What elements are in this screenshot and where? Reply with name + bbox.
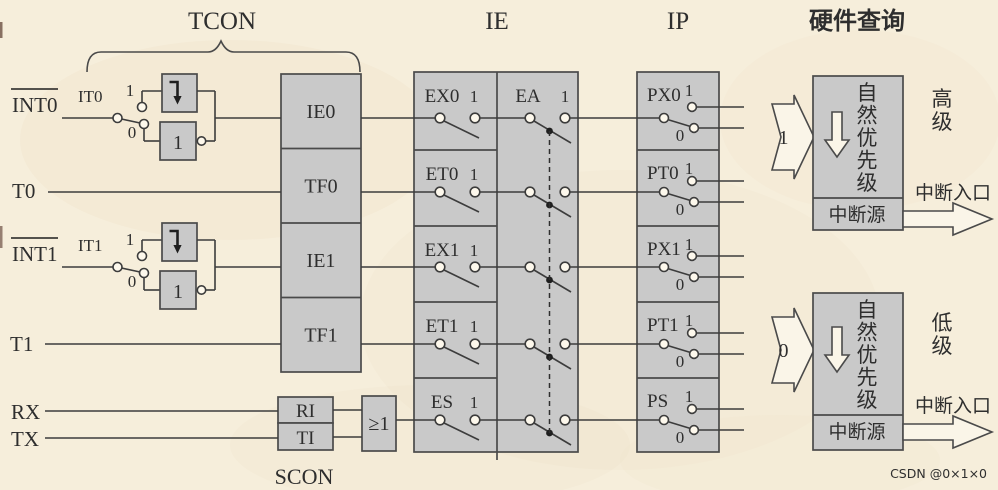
scon-title: SCON	[275, 464, 334, 489]
natural-priority-label: 自然优先级	[857, 298, 878, 412]
switch-contact	[690, 124, 699, 133]
switch-pole	[525, 113, 535, 123]
ip-one-label: 1	[685, 81, 694, 100]
switch-contact	[688, 405, 697, 414]
switch-pole	[435, 187, 445, 197]
interrupt-entry-label: 中断入口	[915, 395, 991, 417]
interrupt-source-label: 中断源	[828, 204, 885, 226]
int1-label: INT1	[12, 242, 58, 266]
ea-one-label: 1	[561, 87, 570, 106]
ie-bit-0-label: EX0	[425, 86, 460, 107]
switch-pole	[113, 114, 122, 123]
switch-contact	[470, 339, 480, 349]
t0-label: T0	[12, 179, 35, 203]
switch-contact	[470, 262, 480, 272]
switch-pole	[525, 339, 535, 349]
ip-zero-label: 0	[676, 352, 685, 371]
switch-pole	[660, 114, 669, 123]
it1-label: IT1	[78, 236, 103, 255]
switch-contact	[560, 187, 570, 197]
it0-label: IT0	[78, 87, 103, 106]
switch-pole	[435, 113, 445, 123]
switch-pole	[525, 262, 535, 272]
switch-contact	[688, 177, 697, 186]
priority-input-value-high: 1	[779, 127, 789, 149]
ie-bit-one-label: 1	[470, 393, 479, 412]
ip-zero-label: 0	[676, 275, 685, 294]
edge-artifact	[0, 22, 3, 38]
priority-level-high: 高级	[932, 87, 953, 134]
ip-zero-label: 0	[676, 428, 685, 447]
rx-label: RX	[11, 400, 40, 424]
edge-artifact	[0, 226, 3, 248]
switch-pole	[113, 263, 122, 272]
switch-pole	[660, 188, 669, 197]
or-gate-label: ≥1	[369, 413, 390, 435]
ie-bit-1-label: ET0	[426, 164, 459, 185]
ie-bit-one-label: 1	[470, 165, 479, 184]
ip-one-label: 1	[685, 159, 694, 178]
ie-bit-4-label: ES	[431, 392, 453, 413]
switch-contact	[560, 113, 570, 123]
switch-contact	[470, 187, 480, 197]
ip-title: IP	[667, 8, 689, 35]
ie-bit-3-label: ET1	[426, 316, 459, 337]
switch-contact	[140, 120, 149, 129]
switch-pole	[435, 262, 445, 272]
ie-title: IE	[485, 8, 509, 35]
switch-contact	[560, 339, 570, 349]
switch-contact	[690, 350, 699, 359]
switch-contact	[688, 329, 697, 338]
trigger-one-label: 1	[126, 81, 135, 100]
interrupt-entry-label: 中断入口	[915, 182, 991, 204]
edge-detector-box	[162, 223, 197, 261]
tcon-bit-0-label: IE0	[307, 101, 336, 123]
trigger-one-label: 1	[126, 230, 135, 249]
ie-bit-2-label: EX1	[425, 240, 460, 261]
tcon-bit-2-label: IE1	[307, 250, 336, 272]
ip-bit-4-label: PS	[647, 391, 668, 412]
switch-pole	[660, 416, 669, 425]
interrupt-system-diagram: TCON IE IP 硬件查询 T0 T1 RX TX RI TI ≥1 SCO…	[0, 0, 998, 490]
watermark: CSDN @0×1×0	[890, 466, 987, 481]
switch-contact	[560, 262, 570, 272]
switch-pole	[660, 340, 669, 349]
interrupt-source-label: 中断源	[828, 421, 885, 443]
tx-label: TX	[11, 427, 39, 451]
ie-bit-one-label: 1	[470, 241, 479, 260]
switch-contact	[688, 103, 697, 112]
ip-one-label: 1	[685, 387, 694, 406]
switch-contact	[690, 426, 699, 435]
trigger-zero-label: 0	[128, 123, 137, 142]
switch-pole	[525, 187, 535, 197]
ea-label: EA	[515, 86, 541, 107]
ti-label: TI	[297, 428, 315, 449]
switch-contact	[690, 198, 699, 207]
switch-pole	[435, 415, 445, 425]
int0-label: INT0	[12, 93, 58, 117]
ip-bit-1-label: PT0	[647, 163, 679, 184]
switch-contact	[690, 273, 699, 282]
switch-pole	[435, 339, 445, 349]
ip-bit-2-label: PX1	[647, 239, 681, 260]
ie-bit-one-label: 1	[470, 317, 479, 336]
edge-detector-box	[162, 74, 197, 112]
ip-zero-label: 0	[676, 200, 685, 219]
ip-one-label: 1	[685, 311, 694, 330]
switch-contact	[688, 252, 697, 261]
switch-pole	[660, 263, 669, 272]
switch-contact	[138, 103, 147, 112]
switch-contact	[470, 113, 480, 123]
level-one-label: 1	[173, 132, 183, 154]
tcon-bit-3-label: TF1	[304, 325, 337, 347]
hw-query-title: 硬件查询	[809, 8, 905, 35]
ie-bit-one-label: 1	[470, 87, 479, 106]
switch-contact	[560, 415, 570, 425]
level-one-label: 1	[173, 281, 183, 303]
texture-blob	[20, 40, 440, 240]
switch-contact	[470, 415, 480, 425]
inverter-bubble	[197, 137, 205, 145]
ip-zero-label: 0	[676, 126, 685, 145]
priority-input-value-low: 0	[779, 340, 789, 362]
ri-label: RI	[296, 401, 315, 422]
priority-level-low: 低级	[932, 311, 953, 358]
trigger-zero-label: 0	[128, 272, 137, 291]
natural-priority-label: 自然优先级	[857, 81, 878, 195]
tcon-title: TCON	[188, 8, 256, 35]
switch-pole	[525, 415, 535, 425]
switch-contact	[138, 252, 147, 261]
inverter-bubble	[197, 286, 205, 294]
switch-contact	[140, 269, 149, 278]
ip-bit-3-label: PT1	[647, 315, 679, 336]
tcon-bit-1-label: TF0	[304, 176, 337, 198]
ip-bit-0-label: PX0	[647, 85, 681, 106]
t1-label: T1	[10, 332, 33, 356]
